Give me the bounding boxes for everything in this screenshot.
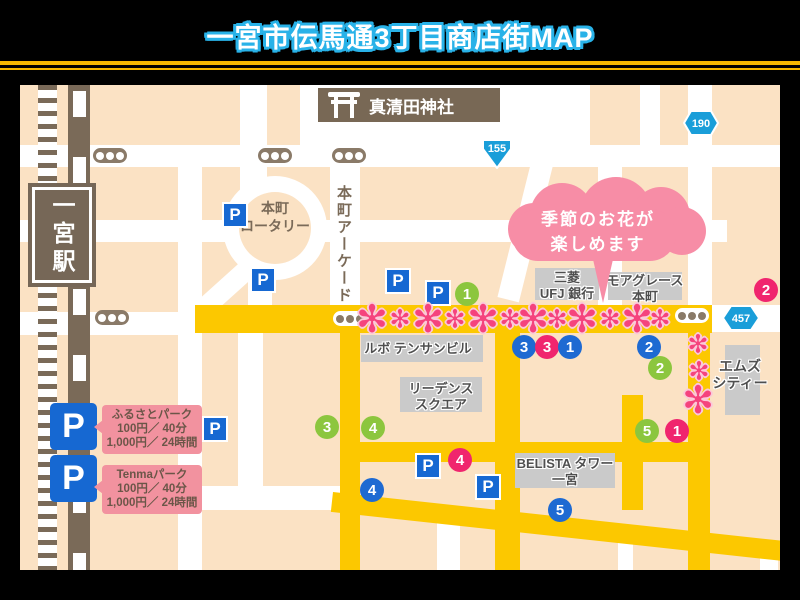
parking-name: Tenmaパーク	[104, 469, 200, 483]
station-box: 一宮駅	[32, 187, 92, 283]
flower-icon: ✻	[650, 308, 671, 333]
flower-icon: ✻	[682, 382, 714, 420]
parking-icon: P	[250, 267, 276, 293]
route-badge-155: 155	[480, 138, 514, 170]
parking-icon-furusato: P	[50, 403, 97, 450]
parking-legend-tenma: Tenmaパーク 100円／ 40分 1,000円／ 24時間	[102, 465, 202, 514]
station-label: 一宮駅	[45, 193, 79, 277]
torii-icon	[328, 92, 360, 118]
flower-icon: ✻	[517, 301, 549, 339]
route-badge-457: 457	[722, 303, 760, 333]
flower-icon: ✻	[688, 333, 709, 358]
speech-bubble-line2: 楽しめます	[510, 230, 686, 255]
spot-marker-green-5: 5	[635, 419, 659, 443]
traffic-light-icon	[93, 148, 127, 163]
speech-bubble-tail	[592, 255, 614, 303]
parking-icon: P	[222, 202, 248, 228]
header-divider-thin	[0, 68, 800, 70]
flower-icon: ✻	[390, 308, 411, 333]
road-south-stub-1	[437, 522, 460, 570]
spot-marker-blue-5: 5	[548, 498, 572, 522]
svg-text:190: 190	[692, 118, 710, 130]
flower-icon: ✻	[600, 308, 621, 333]
flower-icon: ✻	[412, 301, 444, 339]
spot-marker-green-3: 3	[315, 415, 339, 439]
parking-icon: P	[202, 416, 228, 442]
speech-bubble-line1: 季節のお花が	[510, 205, 686, 230]
spot-marker-blue-3: 3	[512, 335, 536, 359]
flower-icon: ✻	[621, 301, 653, 339]
parking-icon-tenma: P	[50, 455, 97, 502]
flower-icon: ✻	[467, 301, 499, 339]
header-divider-thick	[0, 61, 800, 65]
spot-marker-green-4: 4	[361, 416, 385, 440]
parking-icon: P	[415, 453, 441, 479]
spot-marker-green-2: 2	[648, 356, 672, 380]
road-southwest-horizontal	[178, 486, 348, 510]
page-title: 一宮市伝馬通3丁目商店街MAP	[0, 16, 800, 55]
spot-marker-pink-3: 3	[535, 335, 559, 359]
svg-text:457: 457	[732, 313, 750, 325]
spot-marker-pink-2: 2	[754, 278, 778, 302]
route-badge-190: 190	[683, 108, 719, 138]
traffic-light-icon	[258, 148, 292, 163]
arcade-street-label: 本町アーケード	[333, 185, 354, 315]
road-rotary-north	[240, 85, 267, 190]
spot-marker-blue-1: 1	[558, 335, 582, 359]
spot-marker-pink-4: 4	[448, 448, 472, 472]
map-canvas: 本町 ロータリー 一宮駅 真清田神社 本町アーケード 155 190 457 三…	[20, 85, 780, 570]
flower-icon: ✻	[566, 301, 598, 339]
shrine-label: 真清田神社	[369, 93, 454, 118]
building-lubo-label: ルボ テンサンビル	[348, 341, 488, 357]
traffic-light-icon	[95, 310, 129, 325]
road-southwest-vertical	[238, 333, 263, 488]
flower-icon: ✻	[445, 308, 466, 333]
road-top	[20, 145, 780, 167]
parking-day-rate: 1,000円／ 24時間	[104, 497, 200, 511]
parking-rate: 100円／ 40分	[104, 423, 200, 437]
traffic-light-icon	[675, 308, 709, 323]
road-south-stub-2	[618, 542, 633, 570]
shrine-box: 真清田神社	[318, 88, 500, 122]
traffic-light-icon	[332, 148, 366, 163]
road-northeast-short	[640, 85, 660, 147]
parking-rate: 100円／ 40分	[104, 483, 200, 497]
spot-marker-green-1: 1	[455, 282, 479, 306]
building-leadence-square-label: リーデンス スクエア	[395, 381, 487, 412]
spot-marker-blue-4: 4	[360, 478, 384, 502]
flower-icon: ✻	[547, 308, 568, 333]
building-belista-tower-label: BELISTA タワー 一宮	[505, 456, 625, 487]
svg-text:155: 155	[488, 143, 506, 155]
parking-icon: P	[475, 474, 501, 500]
parking-legend-furusato: ふるさとパーク 100円／ 40分 1,000円／ 24時間	[102, 405, 202, 454]
flower-icon: ✻	[356, 301, 388, 339]
parking-name: ふるさとパーク	[104, 409, 200, 423]
parking-icon: P	[385, 268, 411, 294]
parking-day-rate: 1,000円／ 24時間	[104, 437, 200, 451]
spot-marker-pink-1: 1	[665, 419, 689, 443]
